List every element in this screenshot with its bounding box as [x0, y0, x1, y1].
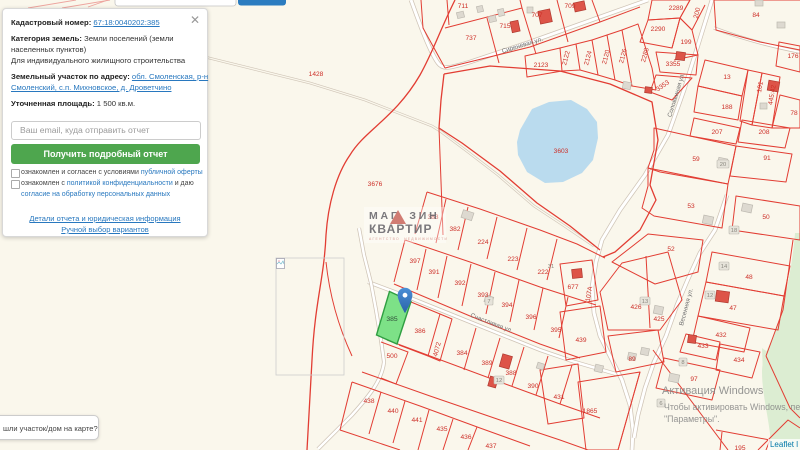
svg-text:425: 425: [653, 316, 664, 323]
svg-text:391: 391: [428, 269, 439, 276]
svg-text:3355: 3355: [666, 61, 681, 68]
svg-text:101: 101: [756, 81, 765, 93]
svg-text:389: 389: [481, 360, 492, 367]
svg-text:12: 12: [496, 378, 502, 384]
svg-text:13: 13: [642, 299, 648, 305]
svg-text:47: 47: [729, 305, 737, 312]
svg-text:386: 386: [414, 328, 425, 335]
svg-text:1865: 1865: [583, 408, 598, 415]
svg-text:709: 709: [564, 3, 575, 10]
svg-text:Сиреневая ул.: Сиреневая ул.: [501, 36, 544, 55]
svg-text:97: 97: [690, 376, 698, 383]
svg-text:59: 59: [692, 156, 700, 163]
svg-text:392: 392: [454, 280, 465, 287]
svg-text:199: 199: [680, 39, 691, 46]
svg-text:48: 48: [745, 274, 753, 281]
svg-text:222: 222: [537, 269, 548, 276]
svg-text:14: 14: [721, 264, 728, 270]
svg-text:188: 188: [721, 104, 732, 111]
svg-text:382: 382: [449, 226, 460, 233]
svg-text:207: 207: [711, 129, 722, 136]
svg-text:89: 89: [628, 356, 636, 363]
svg-text:13: 13: [723, 74, 731, 81]
svg-text:715: 715: [499, 23, 510, 30]
svg-text:435: 435: [436, 426, 447, 433]
svg-text:677: 677: [567, 284, 578, 291]
svg-text:53: 53: [687, 203, 695, 210]
svg-text:18: 18: [731, 228, 737, 234]
svg-text:8: 8: [681, 360, 684, 366]
svg-text:737: 737: [465, 35, 476, 42]
svg-text:436: 436: [460, 434, 471, 441]
svg-text:2124: 2124: [583, 50, 594, 66]
svg-text:426: 426: [630, 304, 641, 311]
svg-text:439: 439: [575, 337, 586, 344]
svg-text:2290: 2290: [651, 26, 666, 33]
svg-text:52: 52: [667, 246, 675, 253]
svg-text:176: 176: [787, 53, 798, 60]
svg-text:393: 393: [477, 292, 488, 299]
svg-text:50: 50: [762, 214, 770, 221]
svg-text:441: 441: [411, 417, 422, 424]
svg-text:438: 438: [363, 398, 374, 405]
svg-text:1428: 1428: [309, 71, 324, 78]
svg-text:91: 91: [763, 155, 771, 162]
svg-text:20: 20: [720, 162, 726, 168]
svg-text:223: 223: [507, 256, 518, 263]
svg-text:434: 434: [733, 357, 744, 364]
svg-text:2122: 2122: [561, 50, 572, 66]
svg-text:396: 396: [525, 314, 536, 321]
svg-text:195: 195: [734, 445, 745, 450]
svg-text:437: 437: [485, 443, 496, 450]
svg-text:384: 384: [456, 350, 467, 357]
svg-text:2123: 2123: [534, 62, 549, 69]
svg-text:84: 84: [752, 12, 760, 19]
svg-text:2120: 2120: [601, 49, 612, 65]
svg-text:432: 432: [715, 332, 726, 339]
svg-text:500: 500: [386, 353, 397, 360]
svg-text:78: 78: [790, 110, 798, 117]
svg-text:31: 31: [548, 264, 554, 270]
svg-text:2289: 2289: [669, 5, 684, 12]
svg-text:433: 433: [697, 343, 708, 350]
svg-text:707: 707: [531, 12, 542, 19]
svg-text:397: 397: [409, 258, 420, 265]
svg-text:388: 388: [505, 370, 516, 377]
svg-text:224: 224: [477, 239, 488, 246]
svg-text:3676: 3676: [368, 181, 383, 188]
svg-text:200: 200: [693, 7, 703, 20]
svg-text:390: 390: [527, 383, 538, 390]
svg-text:711: 711: [458, 3, 469, 10]
svg-text:12: 12: [707, 293, 713, 299]
svg-text:385: 385: [386, 316, 398, 323]
svg-text:440: 440: [387, 408, 398, 415]
svg-text:7: 7: [487, 299, 490, 305]
svg-text:3603: 3603: [554, 148, 569, 155]
svg-text:395: 395: [550, 327, 561, 334]
svg-text:208: 208: [758, 129, 769, 136]
svg-text:3353: 3353: [655, 79, 671, 93]
svg-text:431: 431: [553, 394, 564, 401]
svg-text:394: 394: [501, 302, 512, 309]
